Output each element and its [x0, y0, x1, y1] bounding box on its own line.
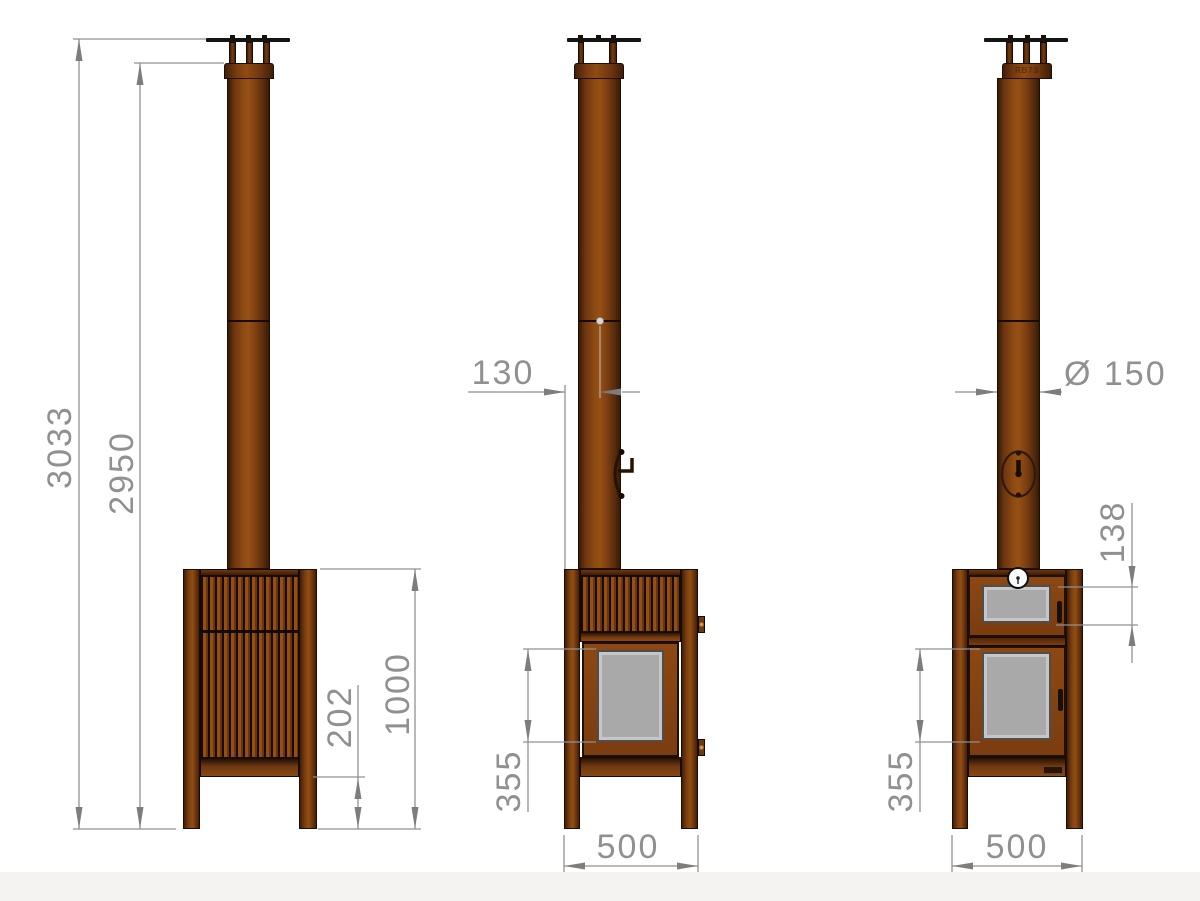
body-post-leg: [564, 569, 580, 829]
brand-mark: RB73: [1002, 66, 1052, 75]
cap-bolt: [611, 35, 616, 38]
flue-joint-line: [998, 320, 1039, 322]
cap-bolt: [578, 35, 583, 38]
brand-badge: [1043, 766, 1063, 774]
dim-label-flue-offset: 130: [472, 356, 535, 390]
dim-label-body-height: 1000: [381, 652, 415, 736]
vent-bottom-band: [580, 632, 681, 642]
dim-label-body-width: 500: [986, 830, 1049, 864]
cap-bolt: [1025, 35, 1030, 38]
flue-collar: [224, 63, 274, 79]
body-post-leg: [681, 569, 698, 829]
body-post-leg: [1066, 569, 1083, 829]
cap-support: [1006, 42, 1013, 64]
body-bottom-band: [200, 758, 299, 777]
dim-label-oven-glass-height: 138: [1096, 501, 1130, 564]
cap-support: [246, 42, 253, 64]
fire-door: [968, 646, 1066, 757]
cap-support: [1040, 42, 1047, 64]
cap-bolt: [230, 35, 235, 38]
fire-door-glass: [597, 650, 664, 742]
door-hinge: [698, 739, 705, 756]
cap-support: [578, 42, 584, 64]
door-hinge: [698, 616, 705, 633]
fire-door: [582, 642, 679, 757]
flue-pipe: [227, 78, 270, 569]
cap-bolt: [596, 35, 601, 38]
dim-label-glass-height: 355: [492, 750, 526, 813]
page-bottom-strip: [0, 872, 1200, 901]
stove-technical-drawing: RB73: [0, 0, 1200, 901]
body-post-leg: [952, 569, 968, 829]
dim-label-glass-height: 355: [884, 750, 918, 813]
oven-door-glass: [982, 585, 1051, 623]
door-divider-band: [968, 637, 1066, 646]
body-post-leg: [299, 569, 317, 829]
cap-support: [1023, 42, 1030, 64]
dim-label-total-height: 3033: [43, 405, 77, 489]
dim-label-under-body: 202: [323, 686, 357, 749]
flue-pipe: [997, 78, 1040, 569]
dim-label-flue-diameter: Ø 150: [1064, 357, 1167, 391]
cap-bolt: [262, 35, 267, 38]
flue-collar: [574, 63, 624, 79]
dim-label-body-width: 500: [597, 830, 660, 864]
cap-support: [263, 42, 270, 64]
dim-label-flue-height: 2950: [105, 431, 139, 515]
cap-bolt: [246, 35, 251, 38]
flue-joint-line: [228, 320, 269, 322]
oven-door-handle: [1057, 601, 1062, 623]
flue-joint-line: [579, 320, 620, 322]
fire-door-glass: [982, 652, 1051, 740]
body-post-leg: [183, 569, 200, 829]
slat-divider-line: [201, 630, 298, 633]
fire-door-handle: [1058, 689, 1063, 711]
body-top-rail: [580, 569, 681, 576]
oven-door: [968, 575, 1066, 637]
vent-slat-panel: [580, 576, 681, 632]
body-bottom-band: [580, 757, 681, 777]
flue-pipe: [578, 78, 621, 569]
body-top-rail: [200, 569, 299, 576]
cap-support: [609, 42, 617, 64]
cap-support: [229, 42, 236, 64]
cap-bolt: [1041, 35, 1046, 38]
cap-bolt: [1008, 35, 1013, 38]
side-slat-panel: [200, 576, 299, 758]
